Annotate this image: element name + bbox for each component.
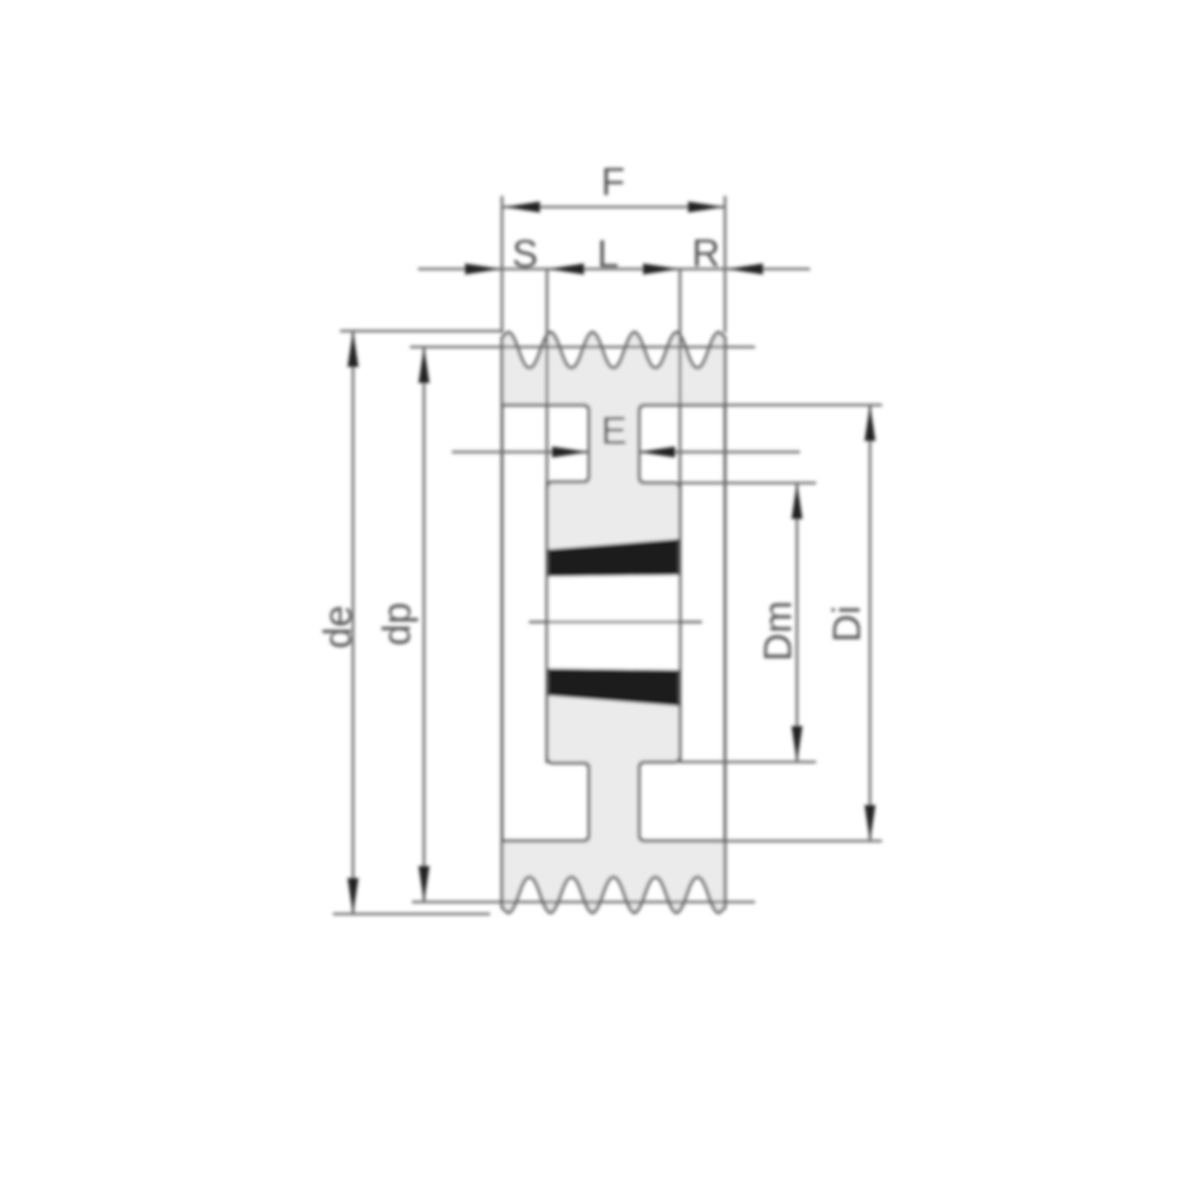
svg-text:F: F (601, 161, 625, 204)
svg-text:L: L (597, 233, 619, 276)
svg-text:Dm: Dm (757, 601, 800, 662)
svg-text:E: E (601, 410, 627, 453)
svg-text:R: R (692, 232, 720, 275)
svg-text:de: de (317, 605, 360, 648)
svg-text:Di: Di (826, 606, 869, 643)
svg-text:S: S (512, 233, 538, 276)
svg-text:dp: dp (376, 602, 419, 645)
